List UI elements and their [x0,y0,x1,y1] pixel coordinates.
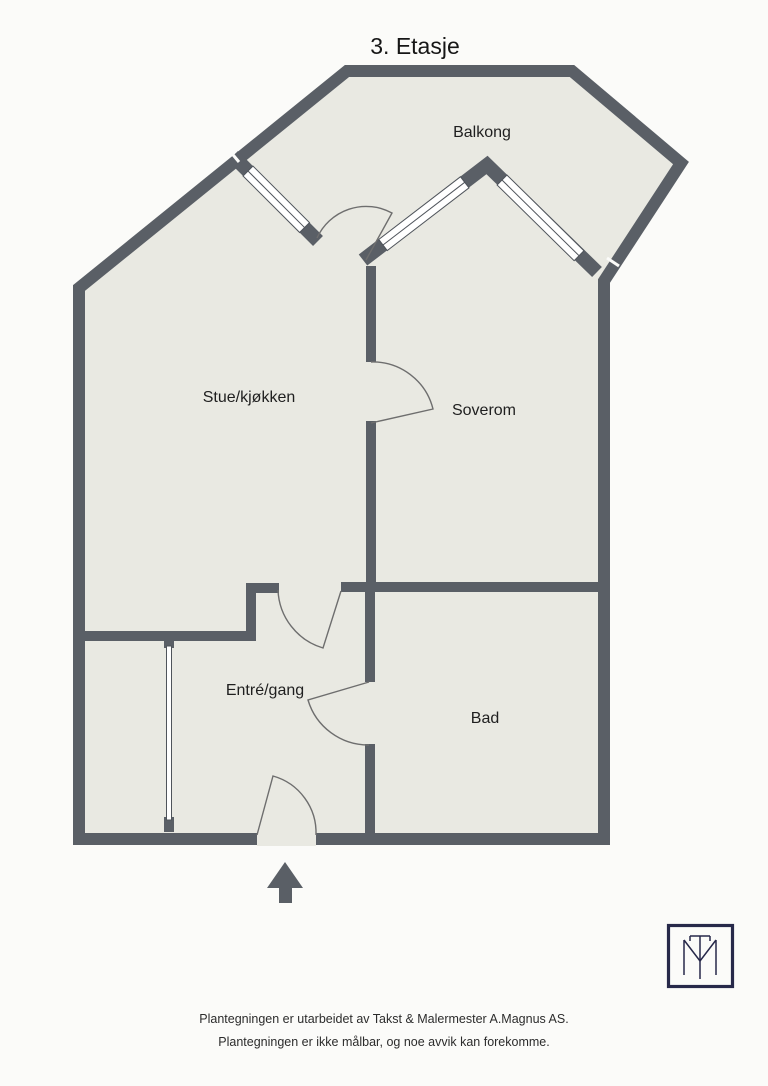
room-label-stue: Stue/kjøkken [203,389,295,406]
entrance-opening [257,832,316,846]
footer-line-1: Plantegningen er utarbeidet av Takst & M… [199,1012,568,1026]
room-label-bad: Bad [471,710,499,727]
page-title: 3. Etasje [370,33,460,59]
room-label-entre: Entré/gang [226,682,304,699]
room-label-balkong: Balkong [453,124,511,141]
floorplan-canvas: 3. Etasje [0,0,768,1086]
room-label-soverom: Soverom [452,402,516,419]
partition-wall [167,646,172,820]
footer-line-2: Plantegningen er ikke målbar, og noe avv… [218,1035,549,1049]
